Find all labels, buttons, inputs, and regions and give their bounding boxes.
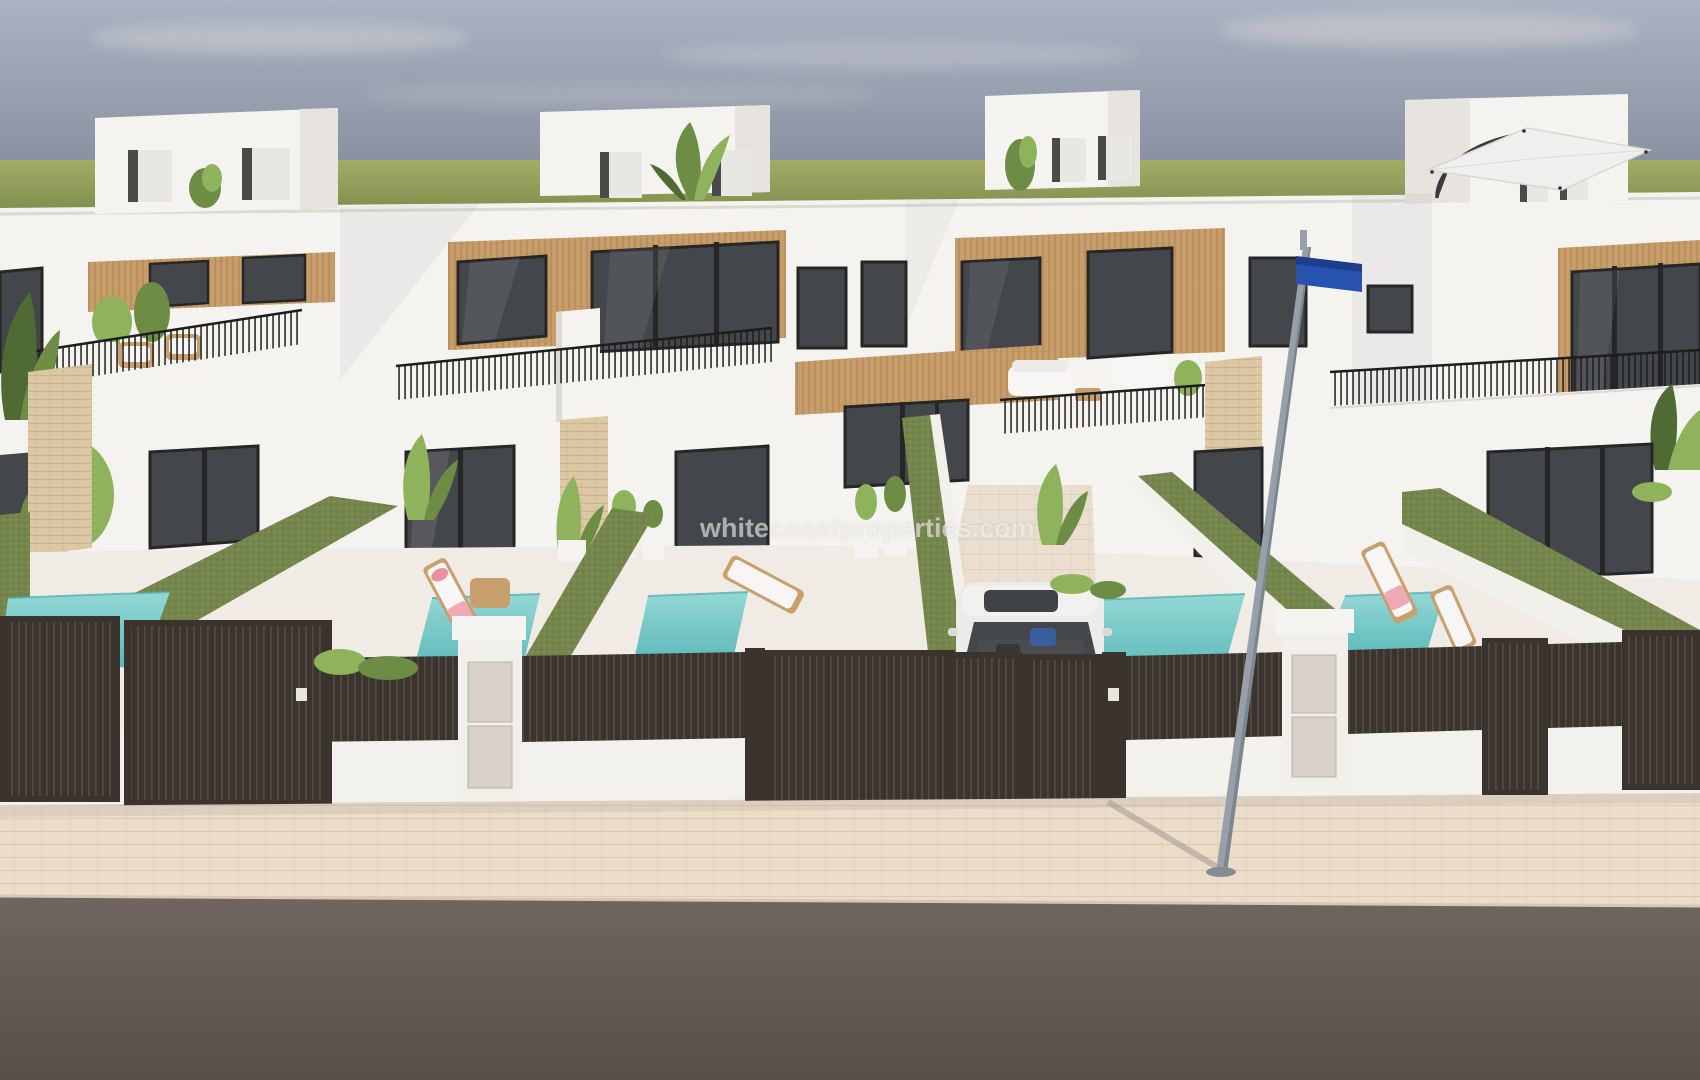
car-interior-detail (1030, 628, 1056, 646)
gate-post-2 (1102, 652, 1126, 815)
gate-4 (1482, 638, 1548, 795)
gate-1 (0, 616, 120, 802)
fence-section-3 (1126, 652, 1285, 740)
gate-5 (1622, 630, 1700, 790)
property-render-image: whitecoastproperties.com (0, 0, 1700, 1080)
gate-3-double (765, 650, 1102, 818)
gate-latch (296, 688, 307, 701)
gate-2 (124, 620, 332, 806)
roof-access-box-2 (540, 105, 770, 200)
stone-pillar-1 (28, 364, 92, 556)
mailbox-pillar-1 (452, 616, 526, 800)
fence-section-4 (1348, 646, 1482, 734)
gate-post-1 (745, 648, 765, 812)
watermark-text: whitecoastproperties.com (700, 513, 1000, 544)
roof-access-box-1 (95, 108, 338, 214)
mailbox-pillar-2 (1276, 609, 1354, 790)
side-table (470, 578, 510, 608)
roof-access-box-3 (985, 90, 1140, 191)
fence-section-2 (522, 652, 745, 742)
road (0, 897, 1700, 1080)
gate-latch-2 (1108, 688, 1119, 701)
fence-section-5 (1548, 642, 1622, 728)
car-sunroof (984, 590, 1058, 612)
